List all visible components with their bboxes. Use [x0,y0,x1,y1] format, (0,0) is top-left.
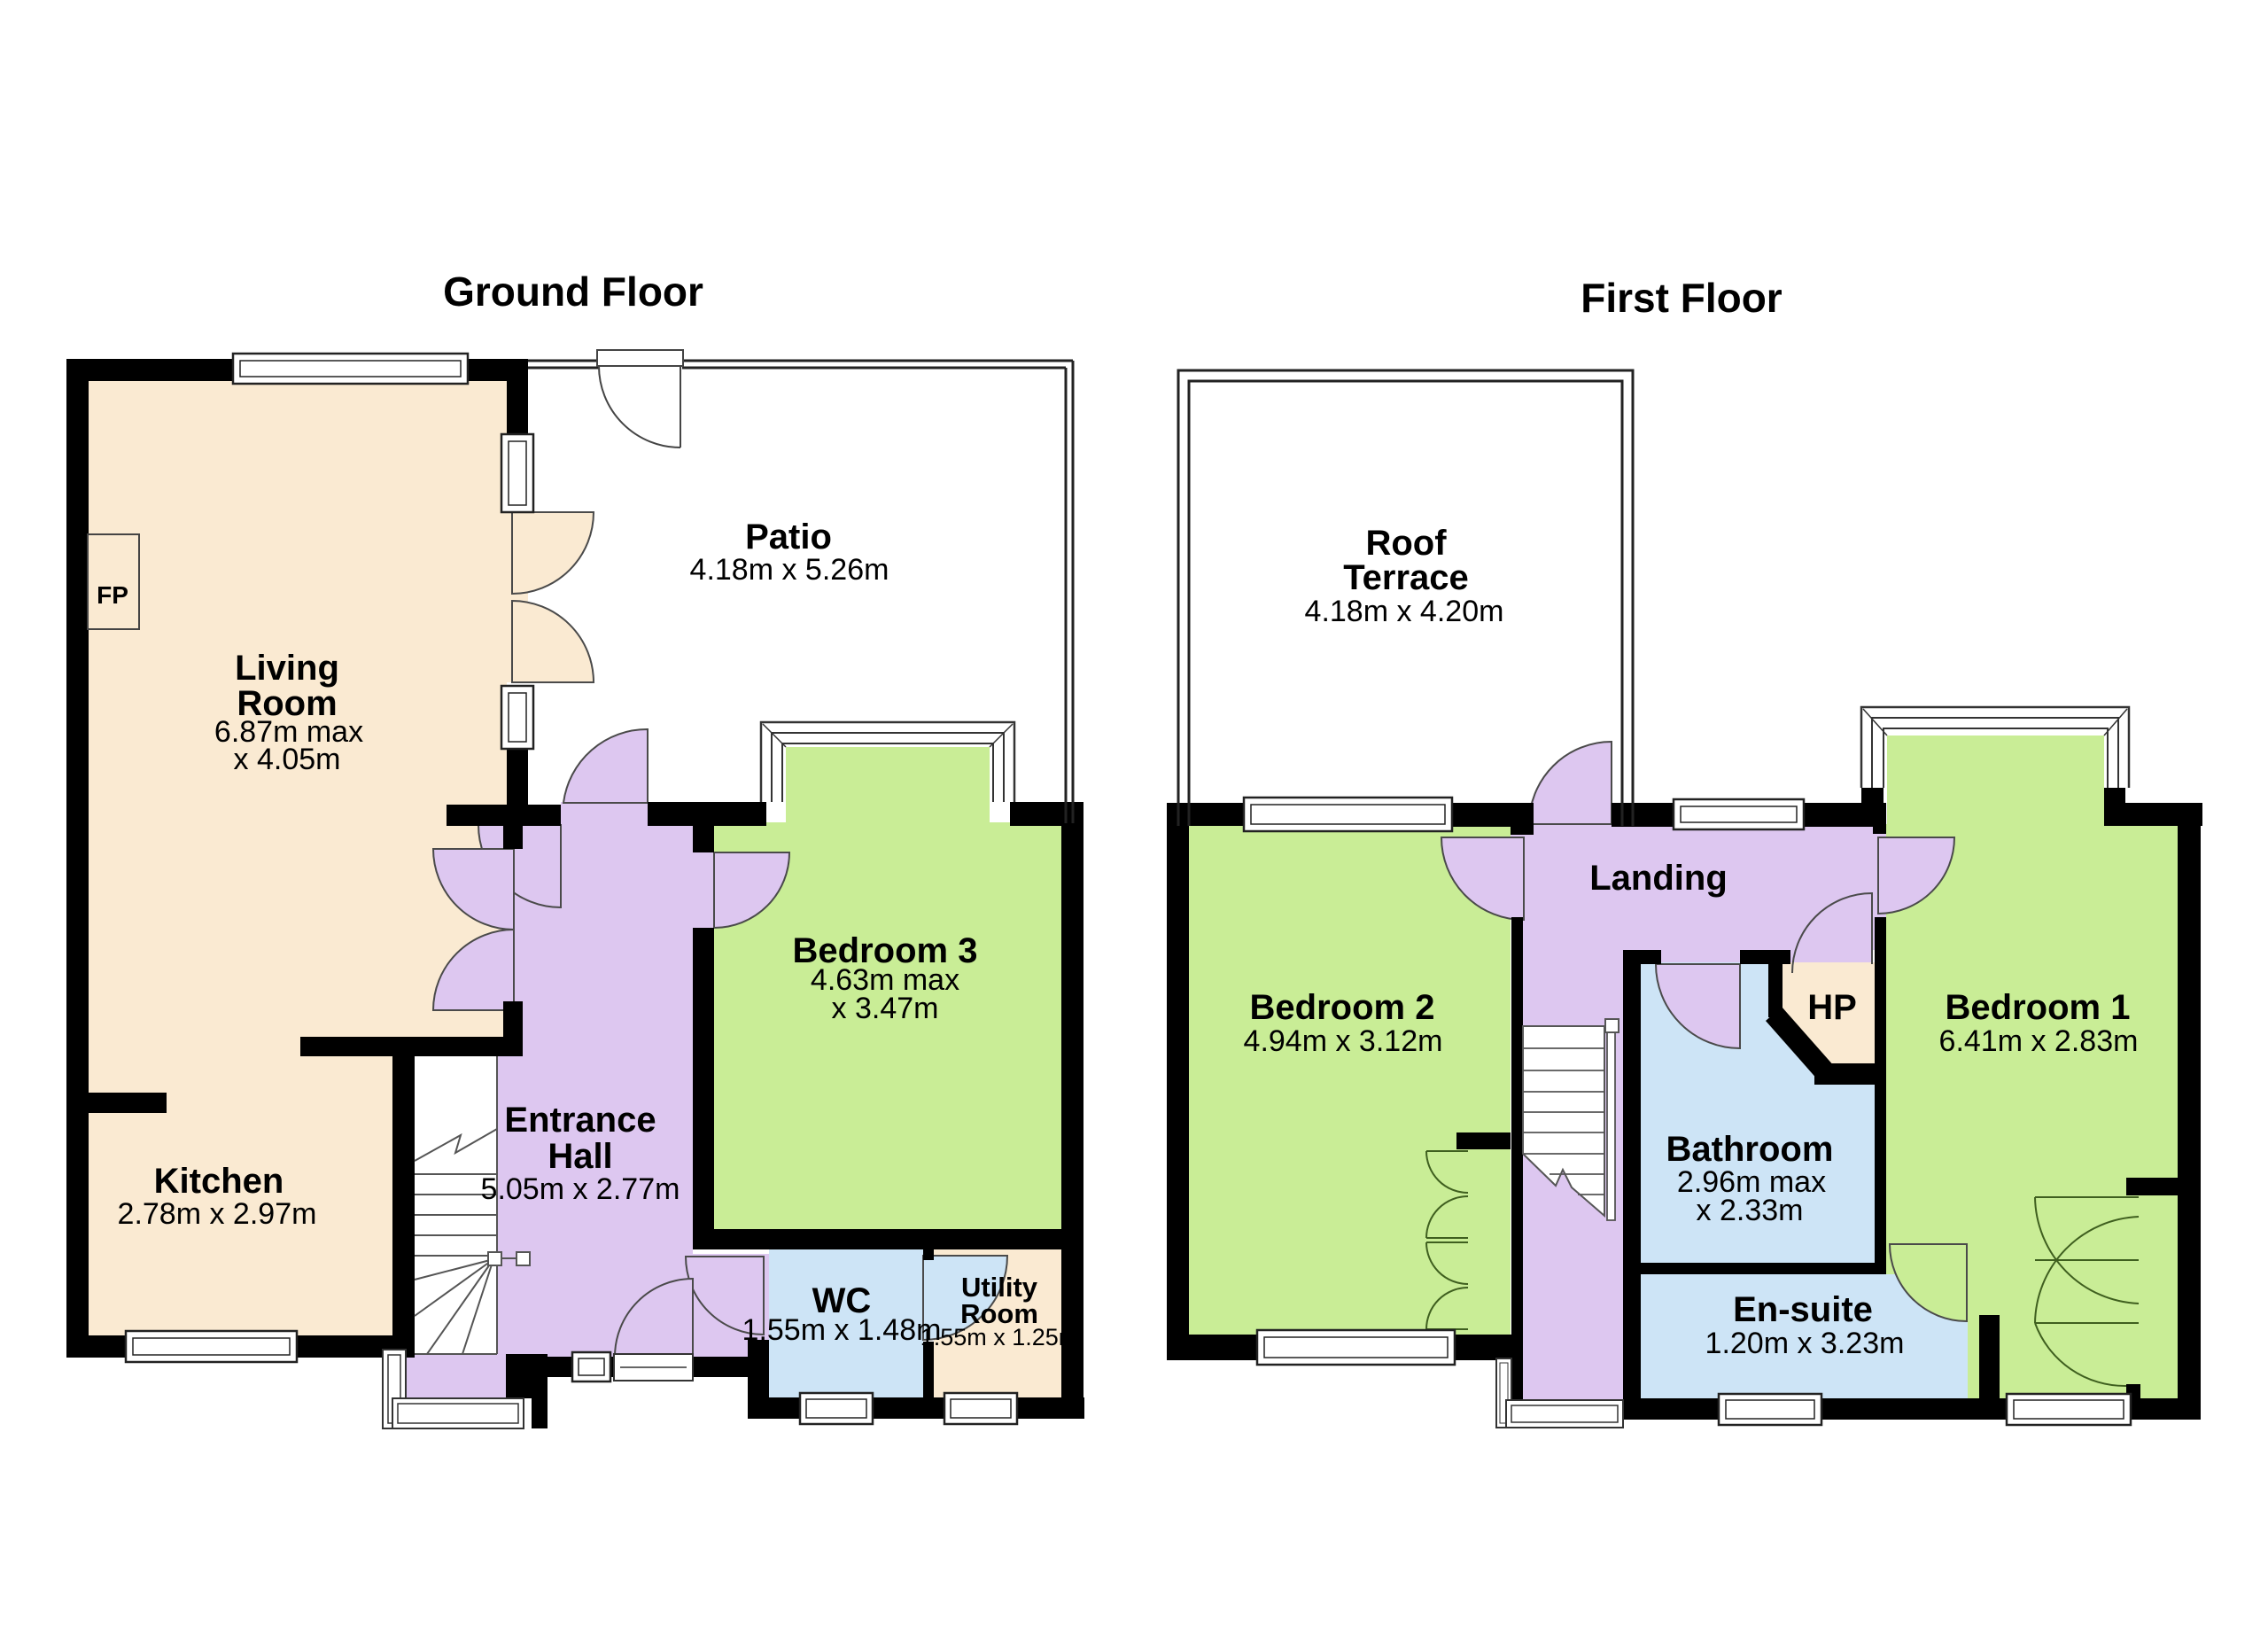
svg-text:Patio: Patio [745,518,832,556]
svg-text:Landing: Landing [1589,859,1728,898]
svg-text:2.78m x 2.97m: 2.78m x 2.97m [118,1197,317,1231]
svg-text:4.18m x 4.20m: 4.18m x 4.20m [1305,595,1504,628]
svg-text:Terrace: Terrace [1343,558,1469,597]
svg-text:1.20m x 3.23m: 1.20m x 3.23m [1705,1327,1905,1360]
svg-text:1.55m x 1.48m: 1.55m x 1.48m [742,1313,942,1347]
svg-text:Living: Living [235,649,339,688]
svg-text:Entrance: Entrance [504,1101,656,1140]
svg-text:Hall: Hall [548,1137,612,1176]
svg-text:x 4.05m: x 4.05m [234,743,341,776]
svg-text:1.55m x 1.25m: 1.55m x 1.25m [920,1324,1079,1350]
svg-text:HP: HP [1807,988,1857,1027]
svg-text:5.05m x 2.77m: 5.05m x 2.77m [481,1172,680,1206]
svg-text:Bedroom 2: Bedroom 2 [1250,988,1435,1027]
svg-text:Bedroom 1: Bedroom 1 [1946,988,2131,1027]
svg-text:Ground Floor: Ground Floor [443,269,703,315]
svg-text:4.18m x 5.26m: 4.18m x 5.26m [690,553,889,587]
svg-text:6.41m x 2.83m: 6.41m x 2.83m [1939,1024,2139,1058]
svg-text:En-suite: En-suite [1733,1290,1873,1329]
svg-text:Kitchen: Kitchen [154,1162,284,1201]
svg-text:x 2.33m: x 2.33m [1697,1194,1804,1227]
svg-text:Bathroom: Bathroom [1666,1130,1834,1169]
svg-text:FP: FP [97,581,128,609]
svg-text:x 3.47m: x 3.47m [832,992,939,1025]
svg-text:Roof: Roof [1365,524,1447,563]
svg-text:First Floor: First Floor [1581,275,1783,321]
svg-text:4.94m x 3.12m: 4.94m x 3.12m [1244,1024,1443,1058]
